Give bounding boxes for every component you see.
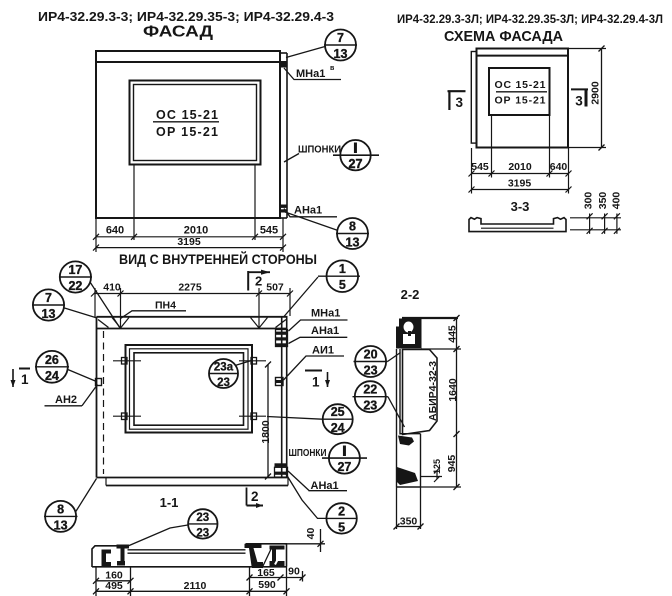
svg-text:507: 507 <box>266 282 284 294</box>
svg-text:ИР4-32.29.3-3Л; ИР4-32.29.35-3: ИР4-32.29.3-3Л; ИР4-32.29.35-3Л; ИР4-32.… <box>397 14 663 26</box>
svg-text:СХЕМА ФАСАДА: СХЕМА ФАСАДА <box>444 28 563 45</box>
svg-text:23а: 23а <box>214 362 234 374</box>
svg-text:590: 590 <box>258 579 276 591</box>
svg-text:3195: 3195 <box>508 178 532 190</box>
svg-text:24: 24 <box>331 421 345 435</box>
svg-text:1640: 1640 <box>447 378 459 402</box>
svg-text:400: 400 <box>611 192 623 210</box>
svg-text:350: 350 <box>597 192 609 210</box>
svg-text:ИР4-32.29.3-3; ИР4-32.29.35-3;: ИР4-32.29.3-3; ИР4-32.29.35-3; ИР4-32.29… <box>38 9 334 24</box>
svg-text:2: 2 <box>255 274 262 289</box>
svg-text:17: 17 <box>68 263 82 277</box>
svg-text:ПН4: ПН4 <box>155 300 176 312</box>
svg-text:13: 13 <box>54 518 68 532</box>
svg-text:23: 23 <box>364 364 378 378</box>
svg-text:13: 13 <box>346 236 360 250</box>
svg-text:1800: 1800 <box>260 420 272 444</box>
svg-text:5: 5 <box>338 520 345 534</box>
svg-text:АБИР4-32-3: АБИР4-32-3 <box>427 361 439 421</box>
svg-text:2010: 2010 <box>508 161 532 173</box>
svg-text:I: I <box>342 443 346 459</box>
svg-text:ОР 15-21: ОР 15-21 <box>495 95 546 107</box>
svg-text:7: 7 <box>337 31 344 45</box>
svg-text:23: 23 <box>196 527 209 539</box>
svg-text:АИ1: АИ1 <box>312 345 334 357</box>
svg-text:640: 640 <box>550 161 568 173</box>
svg-text:АНа1: АНа1 <box>294 205 322 217</box>
svg-text:445: 445 <box>447 325 459 343</box>
svg-text:2010: 2010 <box>184 225 208 237</box>
svg-text:27: 27 <box>337 460 351 474</box>
svg-text:23: 23 <box>217 377 230 389</box>
svg-text:5: 5 <box>339 278 346 292</box>
svg-text:ВИД С ВНУТРЕННЕЙ СТОРОНЫ: ВИД С ВНУТРЕННЕЙ СТОРОНЫ <box>119 250 317 267</box>
svg-text:1: 1 <box>312 375 320 390</box>
svg-text:23: 23 <box>196 512 209 524</box>
svg-text:ШПОНКИ: ШПОНКИ <box>289 448 327 459</box>
svg-text:125: 125 <box>432 459 442 474</box>
svg-text:40: 40 <box>305 528 317 540</box>
svg-text:640: 640 <box>106 225 124 237</box>
svg-text:3: 3 <box>455 95 463 110</box>
svg-text:МНа1: МНа1 <box>311 308 340 320</box>
svg-text:1: 1 <box>21 372 29 387</box>
svg-text:2110: 2110 <box>184 580 207 592</box>
svg-text:3: 3 <box>575 94 583 109</box>
svg-text:22: 22 <box>363 383 377 397</box>
svg-text:2: 2 <box>338 504 345 518</box>
svg-text:945: 945 <box>446 455 458 473</box>
svg-text:545: 545 <box>471 161 489 173</box>
svg-text:26: 26 <box>45 353 59 367</box>
svg-text:165: 165 <box>257 567 275 579</box>
svg-text:22: 22 <box>68 279 82 293</box>
svg-text:8: 8 <box>349 220 356 234</box>
svg-text:495: 495 <box>105 580 123 592</box>
svg-text:2: 2 <box>251 489 259 504</box>
svg-text:20: 20 <box>364 348 378 362</box>
svg-text:1-1: 1-1 <box>160 495 179 510</box>
svg-text:ФАСАД: ФАСАД <box>143 24 214 41</box>
svg-text:410: 410 <box>103 282 121 294</box>
svg-text:2-2: 2-2 <box>401 287 420 302</box>
svg-text:23: 23 <box>363 399 377 413</box>
svg-text:300: 300 <box>583 192 595 210</box>
svg-text:1: 1 <box>339 262 346 276</box>
svg-text:24: 24 <box>45 369 59 383</box>
svg-text:13: 13 <box>42 307 56 321</box>
svg-text:ОР 15-21: ОР 15-21 <box>156 125 218 139</box>
svg-text:3-3: 3-3 <box>511 199 530 214</box>
svg-text:ОС 15-21: ОС 15-21 <box>156 108 218 122</box>
svg-text:ШПОНКИ: ШПОНКИ <box>298 144 341 156</box>
svg-text:2900: 2900 <box>590 81 602 105</box>
svg-text:I: I <box>354 140 358 156</box>
svg-text:13: 13 <box>334 47 348 61</box>
svg-text:2275: 2275 <box>178 282 202 294</box>
svg-text:350: 350 <box>400 516 418 528</box>
svg-text:МНа1: МНа1 <box>296 68 325 80</box>
svg-text:25: 25 <box>331 405 345 419</box>
svg-text:АНа1: АНа1 <box>311 325 339 337</box>
svg-text:7: 7 <box>45 291 52 305</box>
svg-text:8: 8 <box>57 502 64 516</box>
svg-text:90: 90 <box>288 566 300 578</box>
svg-text:АН2: АН2 <box>55 394 77 406</box>
svg-text:ОС 15-21: ОС 15-21 <box>495 79 546 91</box>
svg-text:в: в <box>330 65 335 72</box>
svg-text:27: 27 <box>349 157 363 171</box>
svg-text:545: 545 <box>260 225 278 237</box>
svg-text:3195: 3195 <box>177 236 201 248</box>
